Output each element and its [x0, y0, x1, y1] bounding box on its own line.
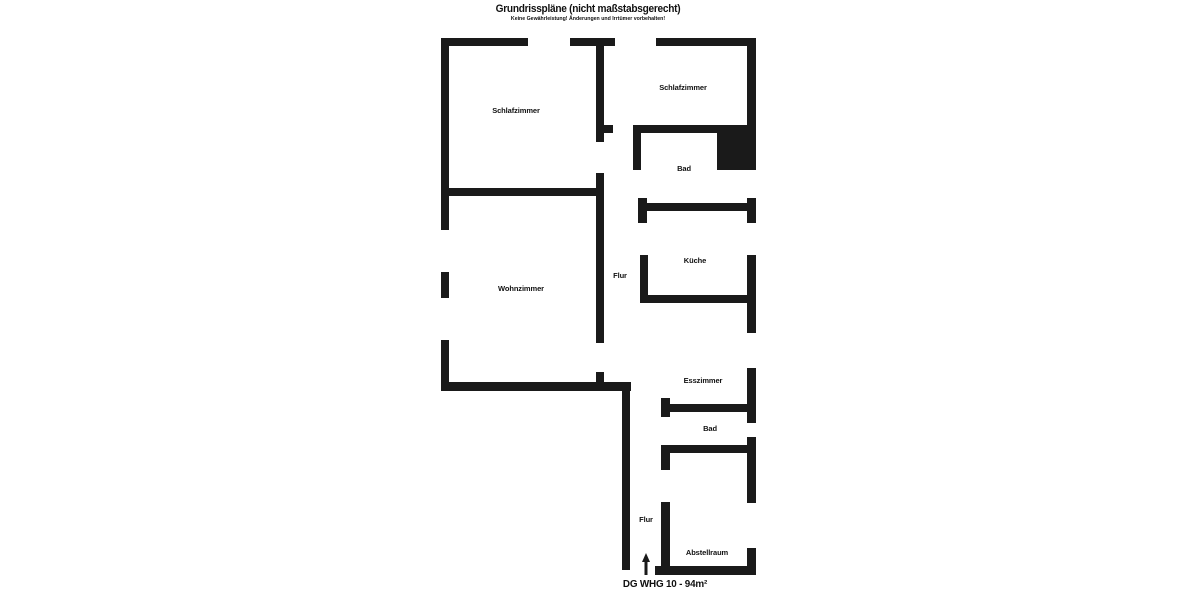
shaft	[717, 133, 756, 170]
wall	[747, 255, 756, 333]
wall	[638, 203, 747, 211]
wall	[570, 38, 615, 46]
wall	[604, 125, 613, 133]
wall	[633, 133, 641, 170]
entrance-arrow-icon	[642, 553, 650, 575]
walls-group	[441, 38, 756, 575]
entrance-arrow-head	[642, 553, 650, 562]
wall	[633, 125, 756, 133]
room-labels-group: SchlafzimmerSchlafzimmerBadKücheFlurWohn…	[492, 83, 728, 557]
wall	[655, 566, 756, 575]
wall	[747, 368, 756, 423]
room-label-wohnzimmer: Wohnzimmer	[498, 284, 544, 293]
wall	[596, 372, 604, 382]
room-label-esszimmer: Esszimmer	[684, 376, 723, 385]
wall	[661, 404, 747, 412]
room-label-bad-upper: Bad	[677, 164, 691, 173]
wall	[648, 295, 747, 303]
wall	[622, 391, 630, 570]
wall	[747, 437, 756, 503]
room-label-kueche: Küche	[684, 256, 706, 265]
wall	[661, 445, 748, 453]
wall	[596, 46, 604, 142]
wall	[661, 502, 670, 575]
wall	[596, 173, 604, 343]
wall	[747, 198, 756, 223]
extras-group	[642, 133, 756, 575]
room-label-flur-upper: Flur	[613, 271, 627, 280]
room-label-schlafzimmer-right: Schlafzimmer	[659, 83, 707, 92]
wall	[441, 382, 631, 391]
wall	[441, 38, 528, 46]
room-label-abstellraum: Abstellraum	[686, 548, 729, 557]
floorplan-page: Grundrisspläne (nicht maßstabsgerecht) K…	[0, 0, 1200, 600]
apartment-caption: DG WHG 10 - 94m²	[608, 578, 723, 590]
floorplan-canvas: SchlafzimmerSchlafzimmerBadKücheFlurWohn…	[0, 0, 1200, 600]
room-label-flur-lower: Flur	[639, 515, 653, 524]
room-label-bad-lower: Bad	[703, 424, 717, 433]
wall	[640, 255, 648, 303]
room-label-schlafzimmer-left: Schlafzimmer	[492, 106, 540, 115]
wall	[441, 272, 449, 298]
wall	[448, 188, 596, 196]
wall	[441, 46, 449, 230]
wall	[656, 38, 756, 46]
